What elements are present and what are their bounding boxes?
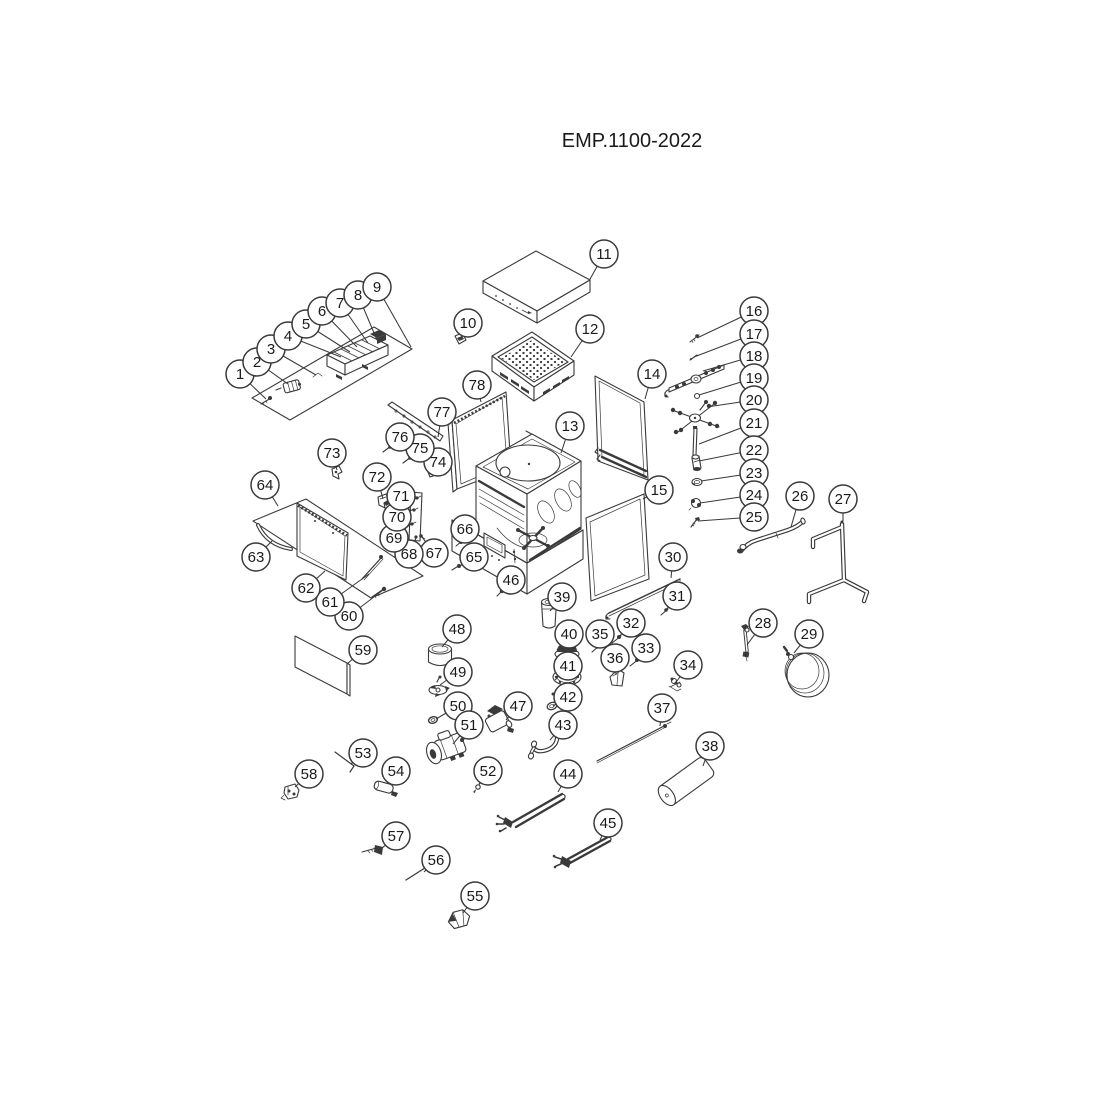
- callout-54: 54: [382, 757, 410, 785]
- part-stand-frame: [809, 521, 867, 603]
- callout-number: 27: [835, 491, 852, 508]
- callout-number: 11: [596, 246, 612, 263]
- callout-39: 39: [548, 583, 576, 611]
- diagram-title: EMP.1100-2022: [562, 130, 702, 152]
- callout-12: 12: [571, 315, 604, 357]
- callout-number: 70: [389, 509, 406, 526]
- callout-number: 55: [467, 888, 484, 905]
- callout-number: 39: [554, 589, 571, 606]
- callout-number: 48: [449, 621, 466, 638]
- callout-number: 65: [466, 549, 483, 566]
- callout-number: 51: [461, 717, 478, 734]
- callout-34: 34: [674, 651, 702, 681]
- callout-number: 44: [560, 766, 577, 783]
- callout-13: 13: [556, 412, 584, 453]
- callout-53: 53: [349, 739, 377, 767]
- exploded-parts-diagram: EMP.1100-2022: [0, 0, 1100, 1100]
- callout-37: 37: [648, 694, 676, 726]
- callout-48: 48: [442, 615, 471, 647]
- callout-number: 74: [430, 454, 447, 471]
- callout-number: 10: [460, 315, 477, 332]
- part-o-ring: [428, 716, 438, 725]
- callout-number: 19: [746, 370, 763, 387]
- callout-number: 60: [341, 608, 358, 625]
- callout-76: 76: [386, 423, 414, 451]
- callout-67: 67: [420, 537, 448, 567]
- callout-45: 45: [594, 809, 622, 840]
- part-upper-spray-assembly: [665, 334, 725, 527]
- callout-number: 69: [386, 530, 403, 547]
- callout-number: 9: [373, 279, 381, 296]
- callout-number: 7: [336, 295, 344, 312]
- callout-59: 59: [347, 636, 377, 664]
- part-heating-element: [496, 794, 565, 832]
- part-inlet-link: [741, 624, 749, 661]
- part-cap-55: [446, 908, 471, 929]
- callout-number: 5: [302, 316, 310, 333]
- callout-26: 26: [786, 482, 814, 527]
- callout-73: 73: [318, 439, 346, 470]
- part-panel-59: [295, 636, 350, 696]
- callout-51: 51: [453, 711, 483, 744]
- callout-number: 8: [354, 287, 362, 304]
- callout-number: 30: [665, 549, 682, 566]
- callout-number: 49: [450, 664, 467, 681]
- callout-number: 1: [236, 366, 244, 383]
- part-heating-element-2: [553, 837, 611, 868]
- callout-27: 27: [829, 485, 857, 521]
- callout-46: 46: [497, 566, 525, 594]
- callout-number: 15: [651, 482, 668, 499]
- callout-number: 62: [298, 580, 315, 597]
- callout-number: 63: [248, 549, 265, 566]
- callout-number: 21: [746, 415, 763, 432]
- callout-number: 20: [746, 392, 763, 409]
- part-long-rod: [597, 722, 671, 763]
- callout-10: 10: [454, 309, 482, 338]
- callout-number: 23: [746, 465, 763, 482]
- callout-28: 28: [747, 609, 777, 645]
- callout-number: 40: [561, 626, 578, 643]
- callout-number: 59: [355, 642, 372, 659]
- callout-number: 58: [301, 766, 318, 783]
- callout-number: 77: [434, 404, 451, 421]
- callout-number: 57: [388, 828, 405, 845]
- part-bracket-34: [669, 678, 681, 692]
- callout-number: 47: [510, 698, 527, 715]
- callout-66: 66: [451, 515, 479, 543]
- callout-55: 55: [461, 882, 489, 913]
- callout-29: 29: [794, 620, 823, 653]
- callout-number: 52: [480, 763, 497, 780]
- callout-number: 37: [654, 700, 671, 717]
- callout-58: 58: [295, 760, 323, 788]
- callout-78: 78: [463, 371, 491, 402]
- callout-number: 64: [257, 477, 274, 494]
- callout-35: 35: [586, 620, 614, 648]
- callout-number: 4: [284, 328, 292, 345]
- callout-47: 47: [504, 692, 532, 720]
- callout-56: 56: [422, 846, 450, 874]
- callout-11: 11: [589, 240, 618, 281]
- callout-number: 28: [755, 615, 772, 632]
- callout-number: 12: [582, 321, 599, 338]
- part-coiled-hose: [784, 647, 829, 697]
- callout-number: 56: [428, 852, 445, 869]
- callout-number: 33: [638, 640, 655, 657]
- callout-number: 18: [746, 348, 763, 365]
- callout-number: 76: [392, 429, 409, 446]
- callout-number: 41: [560, 658, 577, 675]
- callout-number: 78: [469, 377, 486, 394]
- callout-32: 32: [617, 609, 645, 637]
- callout-number: 61: [322, 594, 339, 611]
- callout-number: 38: [702, 738, 719, 755]
- callout-41: 41: [554, 652, 582, 680]
- part-screw-57: [362, 845, 383, 855]
- callout-57: 57: [381, 822, 410, 850]
- diagram-page: EMP.1100-2022: [0, 0, 1100, 1100]
- callout-number: 66: [457, 521, 474, 538]
- callout-33: 33: [632, 634, 660, 662]
- callout-number: 25: [746, 509, 763, 526]
- part-top-lid: [483, 251, 590, 323]
- part-cylinder-tube: [655, 756, 716, 809]
- callout-40: 40: [555, 620, 583, 650]
- callout-number: 53: [355, 745, 372, 762]
- callout-number: 26: [792, 488, 809, 505]
- callout-number: 54: [388, 763, 405, 780]
- callout-64: 64: [251, 471, 279, 506]
- callout-36: 36: [601, 644, 629, 675]
- callout-65: 65: [460, 543, 488, 571]
- callout-14: 14: [638, 360, 666, 399]
- part-side-panel-right: [595, 376, 648, 480]
- callout-number: 16: [746, 303, 763, 320]
- part-bracket-73: [332, 466, 342, 479]
- callout-number: 42: [560, 689, 577, 706]
- callout-number: 43: [555, 717, 572, 734]
- callout-number: 35: [592, 626, 609, 643]
- part-side-panel-lower-right: [586, 494, 649, 601]
- callout-number: 29: [801, 626, 818, 643]
- callout-number: 3: [267, 341, 275, 358]
- callout-number: 22: [746, 442, 763, 459]
- callout-number: 75: [412, 440, 429, 457]
- callout-number: 31: [669, 588, 686, 605]
- callout-number: 73: [324, 445, 341, 462]
- callout-52: 52: [474, 757, 502, 785]
- callout-31: 31: [663, 582, 691, 610]
- callout-number: 46: [503, 572, 520, 589]
- callout-43: 43: [549, 711, 577, 740]
- callout-number: 24: [746, 487, 763, 504]
- callout-number: 72: [369, 469, 386, 486]
- callout-30: 30: [659, 543, 687, 578]
- callout-number: 71: [393, 488, 410, 505]
- callout-number: 34: [680, 657, 697, 674]
- callout-number: 17: [746, 326, 763, 343]
- callout-number: 67: [426, 545, 443, 562]
- callout-44: 44: [554, 760, 582, 792]
- part-basket: [492, 332, 574, 401]
- callout-42: 42: [553, 683, 582, 711]
- callout-number: 36: [607, 650, 624, 667]
- callout-number: 6: [318, 303, 326, 320]
- callout-25: 25: [698, 503, 768, 531]
- callout-number: 13: [562, 418, 579, 435]
- callout-number: 32: [623, 615, 640, 632]
- callout-63: 63: [242, 541, 272, 571]
- callout-number: 45: [600, 815, 617, 832]
- callout-number: 14: [644, 366, 661, 383]
